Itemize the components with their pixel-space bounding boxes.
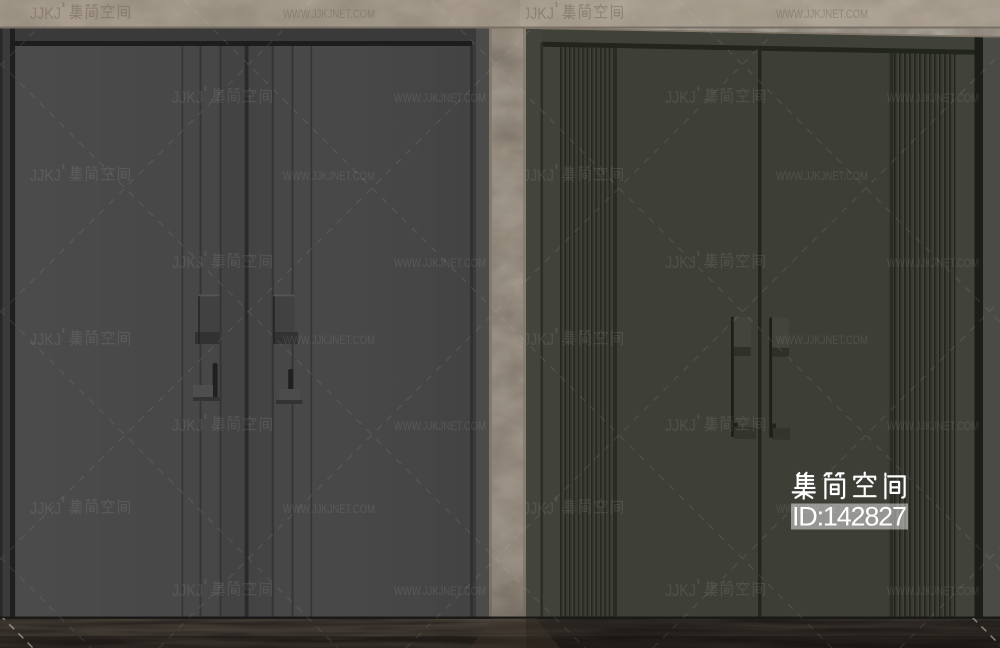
svg-text:WWW.JJKJNET.COM: WWW.JJKJNET.COM bbox=[394, 258, 486, 270]
svg-text:WWW.JJKJNET.COM: WWW.JJKJNET.COM bbox=[283, 335, 375, 347]
svg-text:WWW.JJKJNET.COM: WWW.JJKJNET.COM bbox=[283, 171, 375, 183]
svg-text:WWW.JJKJNET.COM: WWW.JJKJNET.COM bbox=[283, 9, 375, 21]
svg-text:WWW.JJKJNET.COM: WWW.JJKJNET.COM bbox=[887, 93, 979, 105]
svg-text:WWW.JJKJNET.COM: WWW.JJKJNET.COM bbox=[776, 335, 868, 347]
svg-text:WWW.JJKJNET.COM: WWW.JJKJNET.COM bbox=[887, 421, 979, 433]
svg-text:JJKJ: JJKJ bbox=[172, 417, 203, 435]
svg-text:JJKJ: JJKJ bbox=[30, 331, 61, 349]
svg-text:JJKJ: JJKJ bbox=[665, 582, 696, 600]
svg-text:JJKJ: JJKJ bbox=[172, 89, 203, 107]
svg-text:JJKJ: JJKJ bbox=[30, 500, 61, 518]
svg-text:JJKJ: JJKJ bbox=[172, 254, 203, 272]
svg-text:JJKJ: JJKJ bbox=[30, 167, 61, 185]
svg-text:WWW.JJKJNET.COM: WWW.JJKJNET.COM bbox=[394, 421, 486, 433]
svg-text:JJKJ: JJKJ bbox=[665, 89, 696, 107]
svg-text:JJKJ: JJKJ bbox=[30, 5, 61, 23]
svg-text:JJKJ: JJKJ bbox=[665, 417, 696, 435]
svg-text:WWW.JJKJNET.COM: WWW.JJKJNET.COM bbox=[887, 258, 979, 270]
svg-text:JJKJ: JJKJ bbox=[523, 5, 554, 23]
svg-text:WWW.JJKJNET.COM: WWW.JJKJNET.COM bbox=[283, 504, 375, 516]
svg-text:WWW.JJKJNET.COM: WWW.JJKJNET.COM bbox=[394, 93, 486, 105]
svg-text:WWW.JJKJNET.COM: WWW.JJKJNET.COM bbox=[776, 9, 868, 21]
svg-text:WWW.JJKJNET.COM: WWW.JJKJNET.COM bbox=[776, 171, 868, 183]
svg-text:WWW.JJKJNET.COM: WWW.JJKJNET.COM bbox=[394, 586, 486, 598]
svg-text:WWW.JJKJNET.COM: WWW.JJKJNET.COM bbox=[887, 586, 979, 598]
svg-text:JJKJ: JJKJ bbox=[523, 500, 554, 518]
svg-text:ID:142827: ID:142827 bbox=[792, 502, 906, 532]
svg-text:JJKJ: JJKJ bbox=[172, 582, 203, 600]
svg-text:JJKJ: JJKJ bbox=[665, 254, 696, 272]
svg-text:JJKJ: JJKJ bbox=[523, 167, 554, 185]
svg-text:JJKJ: JJKJ bbox=[523, 331, 554, 349]
